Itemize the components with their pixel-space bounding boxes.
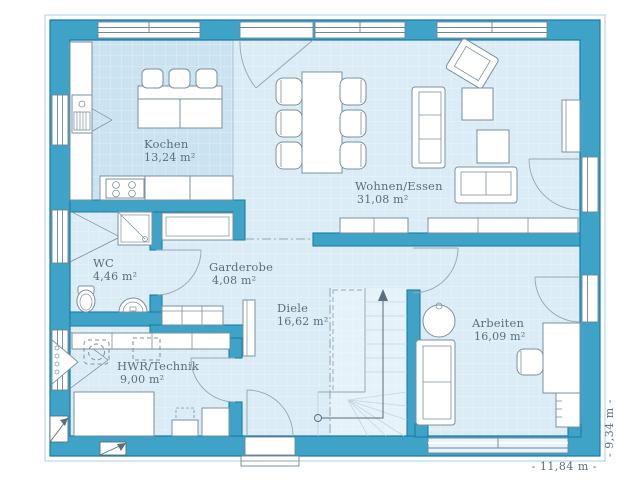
dining-furniture	[276, 72, 366, 173]
wall-wc-south	[70, 312, 162, 326]
room-label-arbeiten: Arbeiten	[471, 316, 524, 330]
window-kitchen-north	[98, 22, 200, 38]
bar-stools	[142, 69, 217, 88]
kitchen-counter-south	[100, 176, 233, 200]
lowboard-1	[340, 218, 408, 233]
office-sofa	[416, 340, 455, 425]
windows-top	[98, 22, 547, 38]
window-pier-left	[415, 424, 428, 437]
desk-chair	[517, 349, 543, 375]
wall-wc-stub	[150, 295, 162, 313]
room-area-hwr: 9,00 m²	[120, 373, 164, 386]
sofa-large	[412, 87, 445, 168]
desk	[543, 323, 580, 393]
room-area-wc: 4,46 m²	[93, 270, 137, 283]
shower	[118, 212, 152, 245]
dimension-height: - 9,34 m -	[603, 399, 616, 457]
kitchen-island	[138, 86, 222, 128]
shoe-bench	[162, 306, 223, 325]
hwr-cabinet	[202, 408, 229, 436]
wardrobe	[162, 213, 233, 240]
room-label-hwr: HWR/Technik	[117, 359, 200, 373]
wall-hwr-east-lower	[229, 402, 242, 436]
hwr-counter	[72, 333, 230, 349]
sofa-small	[455, 167, 517, 203]
window-living-north-1	[315, 22, 405, 38]
room-label-wc: WC	[93, 256, 114, 270]
toilet	[77, 286, 95, 312]
window-arbeiten-south	[428, 438, 568, 453]
wall-hwr-east-upper	[229, 338, 242, 358]
floor-plan-svg: Kochen 13,24 m² Wohnen/Essen 31,08 m² WC…	[0, 0, 640, 480]
desk-shelf	[556, 393, 580, 427]
room-label-wohnen: Wohnen/Essen	[355, 179, 443, 193]
hall-cabinet	[243, 300, 255, 356]
side-table-2	[477, 130, 509, 163]
dining-table	[302, 72, 342, 173]
room-area-diele: 16,62 m²	[277, 315, 328, 328]
side-table-1	[462, 88, 493, 120]
drain-marker-west	[50, 416, 68, 442]
floor-plan-page: Kochen 13,24 m² Wohnen/Essen 31,08 m² WC…	[0, 0, 640, 480]
sideboard-east	[562, 100, 580, 152]
drain-marker-south	[100, 442, 126, 455]
window-living-north-2	[437, 22, 547, 38]
room-area-arbeiten: 16,09 m²	[474, 330, 525, 343]
room-label-garderobe: Garderobe	[209, 260, 273, 274]
hwr-worktable	[74, 392, 154, 436]
lowboard-2	[428, 218, 578, 233]
room-area-kochen: 13,24 m²	[144, 151, 195, 164]
room-label-kochen: Kochen	[144, 137, 189, 151]
dimension-width: - 11,84 m -	[532, 460, 597, 473]
room-area-wohnen: 31,08 m²	[357, 193, 408, 206]
room-label-diele: Diele	[277, 301, 308, 315]
wall-living-diele	[313, 233, 580, 246]
room-area-garderobe: 4,08 m²	[212, 274, 256, 287]
